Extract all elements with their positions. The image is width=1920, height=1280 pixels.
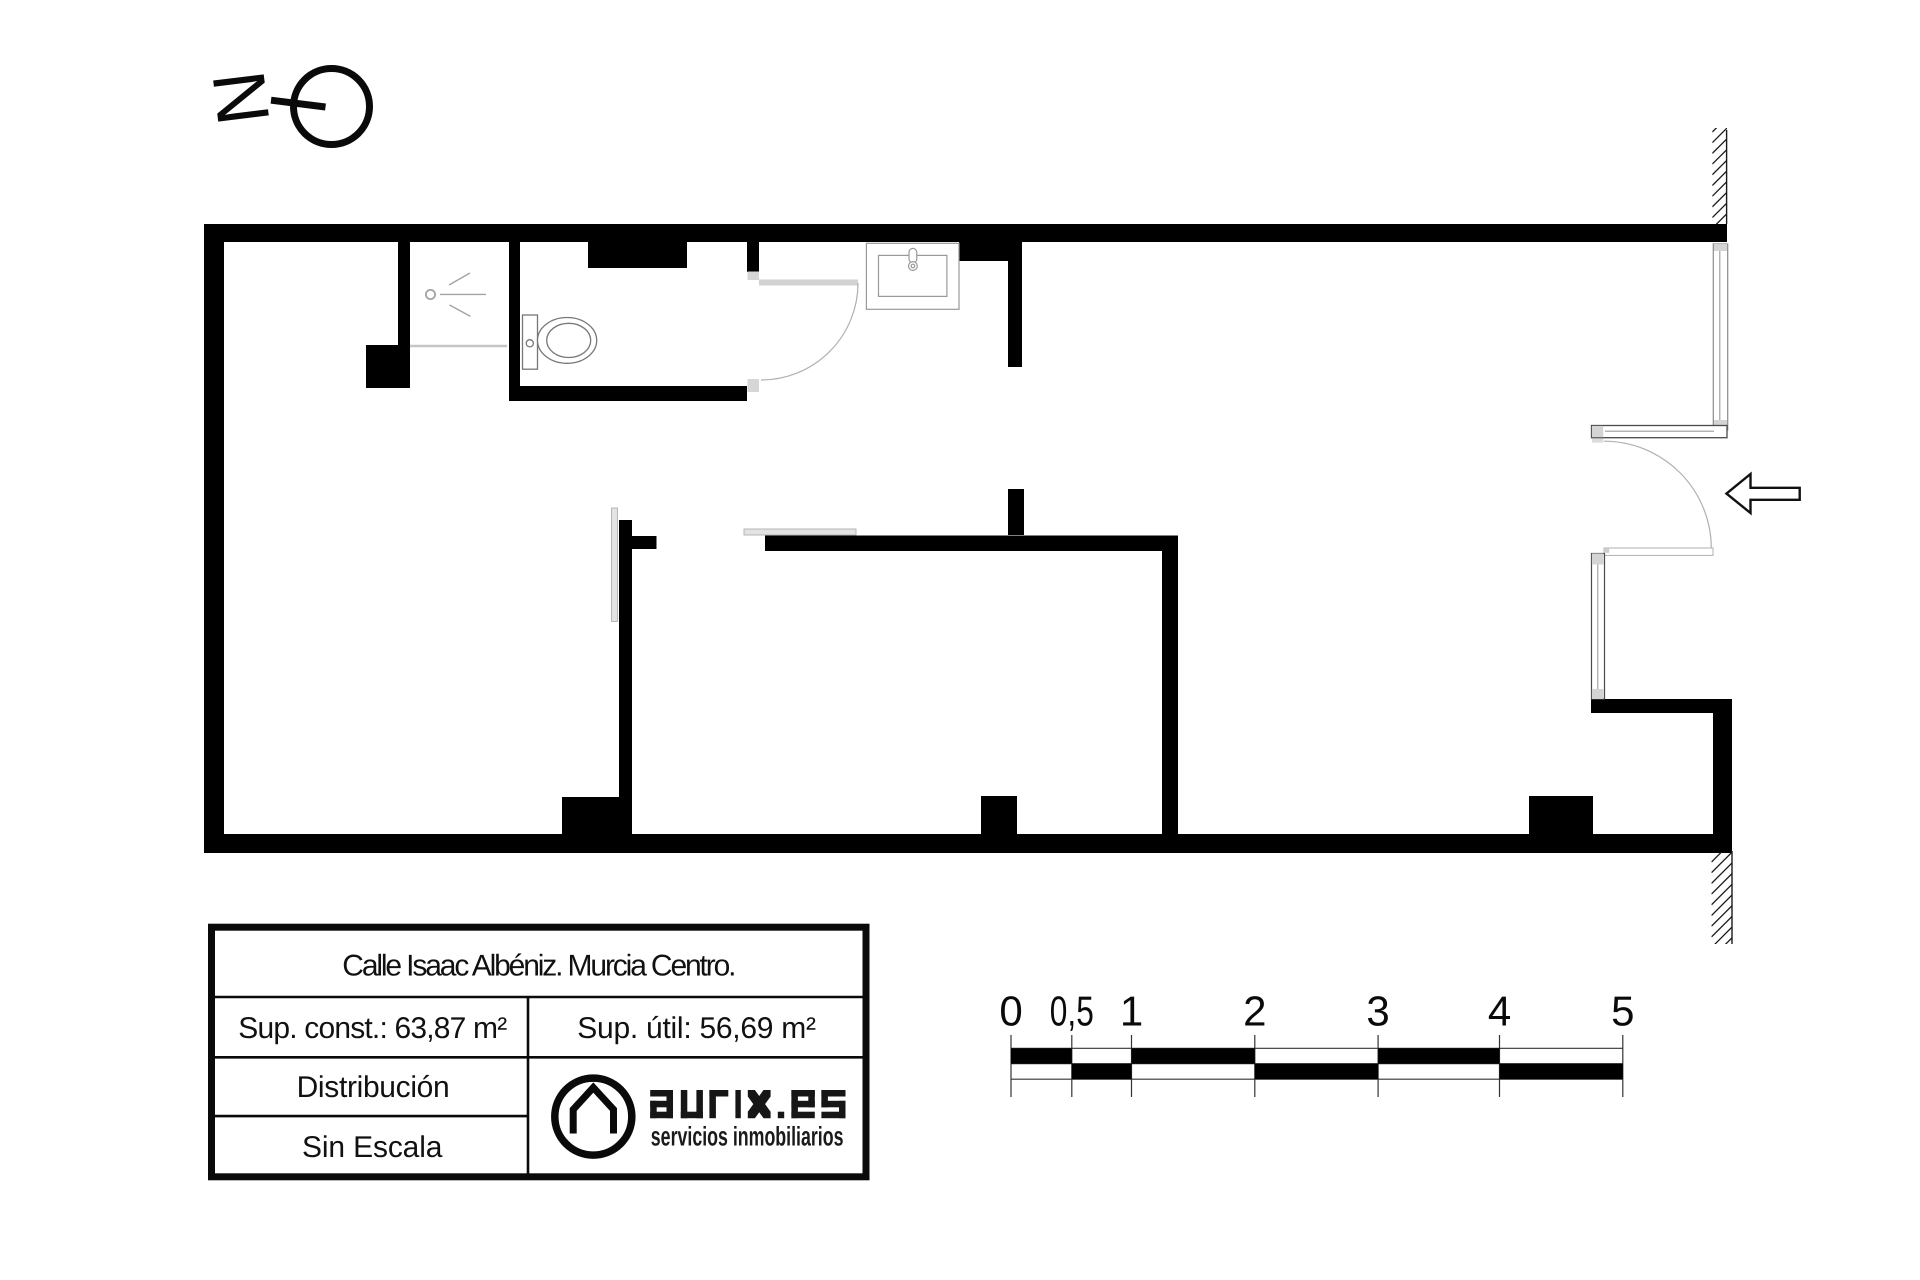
svg-text:1: 1 (1120, 988, 1143, 1035)
svg-text:servicios inmobiliarios: servicios inmobiliarios (651, 1122, 844, 1152)
svg-text:0,5: 0,5 (1050, 988, 1094, 1035)
svg-text:Distribución: Distribución (297, 1071, 450, 1104)
svg-text:Calle Isaac Albéniz. Murcia Ce: Calle Isaac Albéniz. Murcia Centro. (342, 950, 736, 983)
svg-text:Sup. const.: 63,87 m²: Sup. const.: 63,87 m² (238, 1012, 507, 1045)
svg-text:N: N (197, 66, 286, 129)
svg-text:4: 4 (1488, 988, 1511, 1035)
svg-text:0: 0 (999, 988, 1022, 1035)
svg-text:2: 2 (1243, 988, 1266, 1035)
svg-text:Sup. útil: 56,69 m²: Sup. útil: 56,69 m² (577, 1012, 816, 1045)
svg-text:5: 5 (1611, 988, 1634, 1035)
svg-text:Sin Escala: Sin Escala (302, 1131, 443, 1164)
svg-text:3: 3 (1366, 988, 1389, 1035)
